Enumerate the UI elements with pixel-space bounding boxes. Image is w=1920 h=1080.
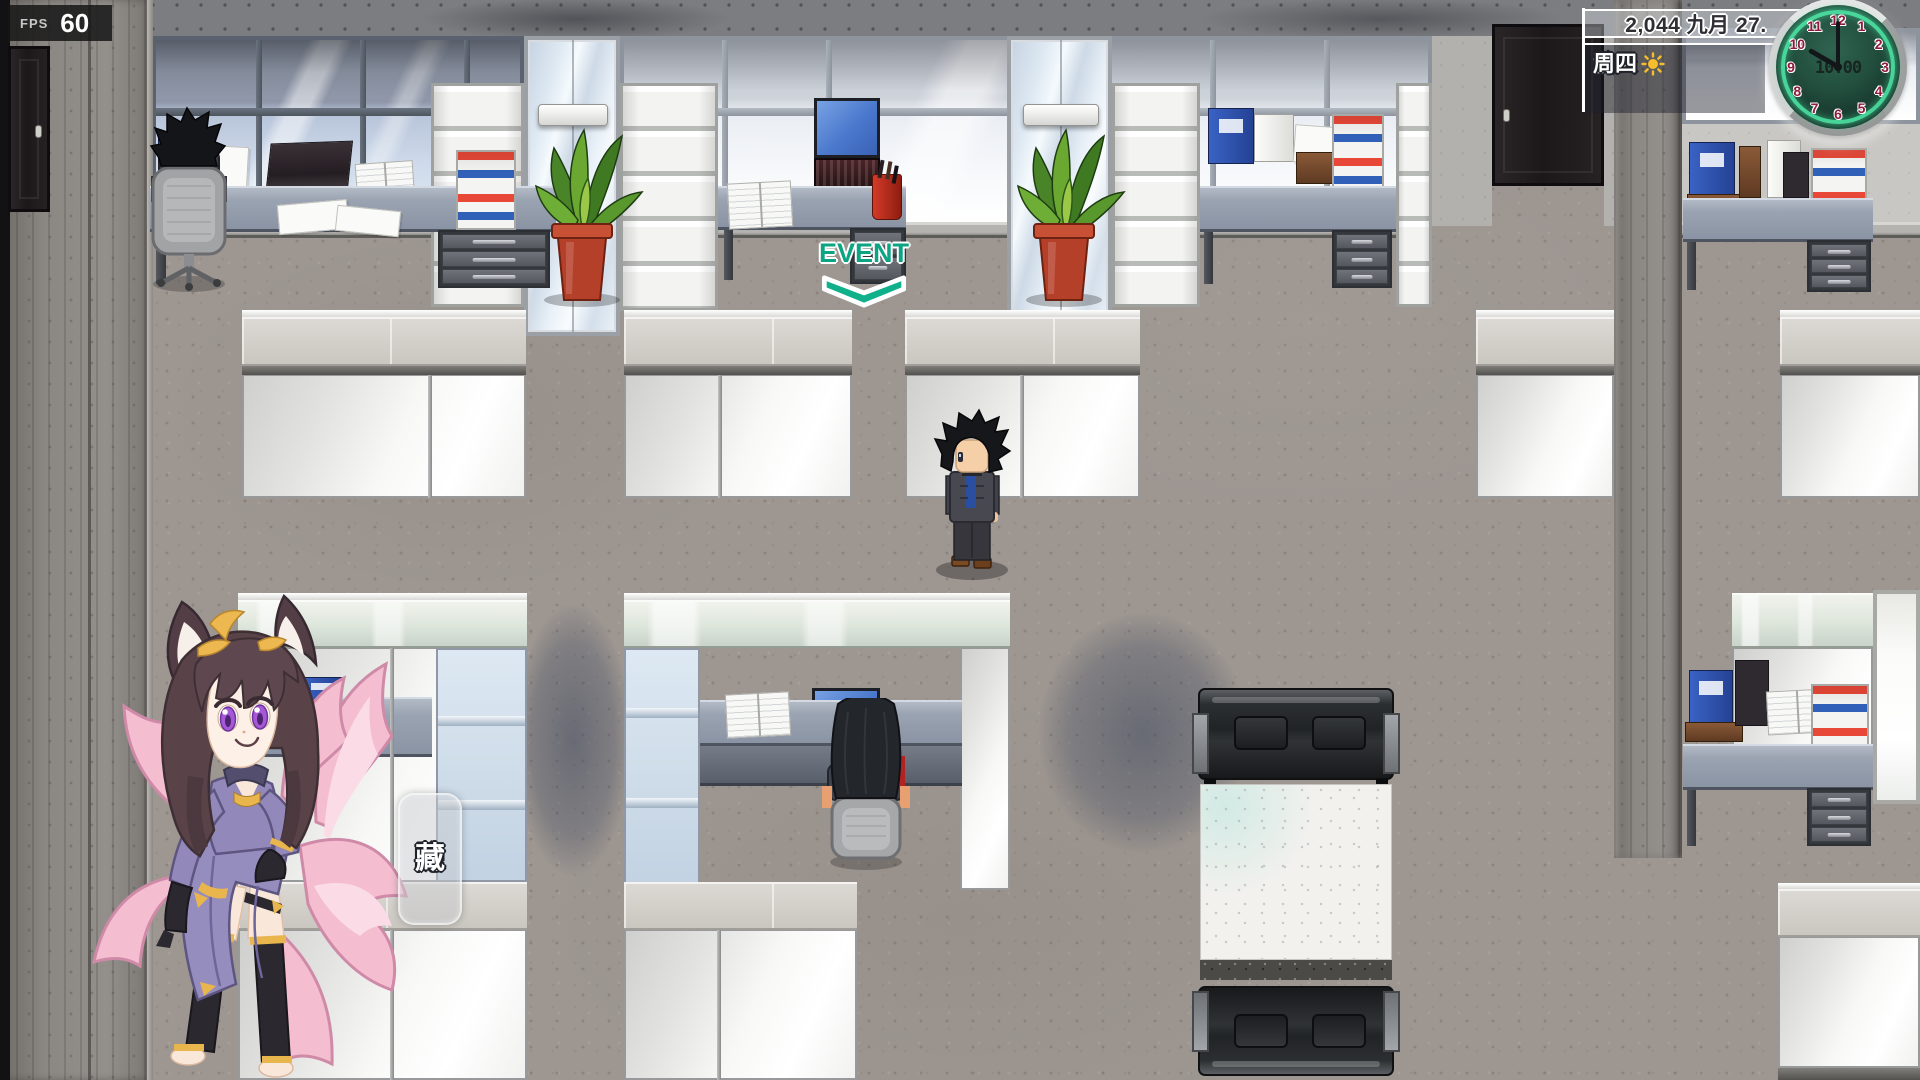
cubicle-partition <box>624 310 852 498</box>
door-handle <box>35 125 42 138</box>
fps-label: FPS <box>20 16 48 31</box>
open-binder <box>725 691 791 738</box>
weekday-text: 周四 <box>1593 48 1637 79</box>
desk-leg <box>1204 232 1213 284</box>
sun-icon <box>1641 52 1665 76</box>
red-pen-cup <box>872 174 902 220</box>
wall-segment <box>1432 36 1492 226</box>
blue-book <box>1689 670 1733 726</box>
white-shelf-column <box>1396 83 1432 307</box>
door-handle <box>1503 109 1510 122</box>
game-viewport[interactable]: EVENT <box>0 0 1920 1080</box>
cubicle-partition <box>242 310 526 498</box>
event-label: EVENT <box>819 238 909 268</box>
blue-book <box>1689 142 1735 198</box>
fps-value: 60 <box>60 8 89 39</box>
event-marker[interactable]: EVENT <box>806 238 922 310</box>
blue-books <box>1208 108 1254 164</box>
desk-leg <box>1687 790 1696 846</box>
desk-drawers <box>1807 240 1871 292</box>
cubicle-partition <box>1780 310 1920 498</box>
desk-surface <box>1683 744 1873 790</box>
center-wall-pillar <box>1614 0 1682 858</box>
minute-hand <box>1836 21 1840 67</box>
npc-office-worker-top-left <box>143 106 235 292</box>
fps-counter: FPS 60 <box>8 5 112 41</box>
player-character <box>930 408 1014 580</box>
dark-books <box>1783 152 1809 198</box>
desk-right-room-bottom <box>1683 660 1873 856</box>
potted-plant-left <box>516 98 648 308</box>
event-arrow-icon <box>818 274 910 308</box>
npc-office-worker-lower-center <box>820 698 912 870</box>
white-binders <box>1254 114 1294 162</box>
table-granite-edge <box>1200 960 1392 980</box>
analog-clock: 123456789101112 10:00 <box>1769 0 1907 136</box>
magazine-rack <box>456 150 516 230</box>
brown-binder <box>1739 146 1761 198</box>
bright-window-right <box>1873 590 1920 804</box>
office-door-left <box>8 46 50 212</box>
potted-plant-right <box>998 98 1130 308</box>
magazine-rack <box>1332 114 1384 188</box>
desk-surface <box>1683 198 1873 242</box>
desk-right-room-top <box>1683 138 1873 294</box>
companion-fox-girl <box>86 586 412 1080</box>
open-binder <box>727 180 793 229</box>
magazine-rack <box>1811 148 1867 204</box>
dark-binders <box>1735 660 1769 726</box>
marble-table <box>1200 784 1392 960</box>
desk-drawers <box>1332 230 1392 288</box>
cubicle-block-lower-center <box>624 593 1010 890</box>
season-weekday-panel: 秋天 周四 <box>1585 45 1765 113</box>
hide-companion-button[interactable]: <<< 隐 藏 <box>398 793 462 925</box>
black-sofa-top <box>1198 688 1394 780</box>
clock-center-cap <box>1834 63 1842 71</box>
black-sofa-bottom <box>1198 986 1394 1076</box>
cubicle-partition <box>1476 310 1614 498</box>
cubicle-block-bottom-right <box>1778 883 1920 1080</box>
desk-surface <box>1200 186 1396 232</box>
papers <box>335 205 401 238</box>
date-bar: 2,044 九月 27. <box>1585 9 1807 38</box>
date-text: 2,044 九月 27. <box>1625 9 1766 39</box>
desk-leg <box>724 230 733 280</box>
door-panel <box>1503 37 1593 173</box>
desk-drawers <box>1807 788 1871 846</box>
hide-label-bottom: 藏 <box>415 841 445 877</box>
computer-monitor <box>814 98 880 158</box>
desk-leg <box>1687 242 1696 290</box>
desk-top-right <box>1194 104 1396 288</box>
cubicle-block-bottom-center <box>624 882 857 1080</box>
